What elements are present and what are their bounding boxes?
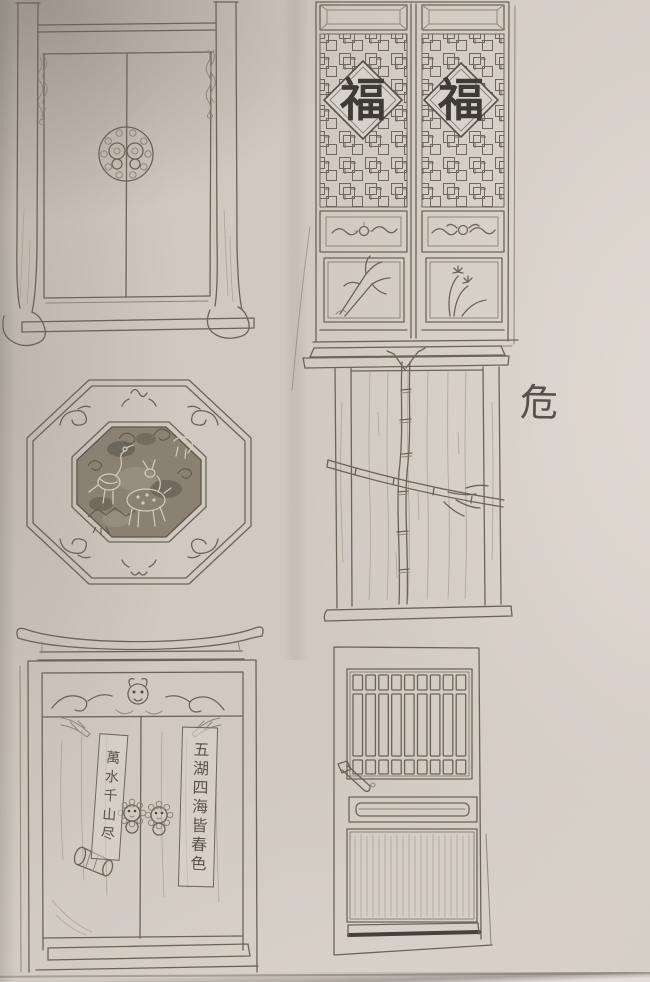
lintel <box>38 23 216 32</box>
cornice <box>303 346 509 368</box>
paper-bottom-edge <box>0 972 650 982</box>
threshold <box>22 318 254 332</box>
grille-bottom-row <box>353 760 466 774</box>
bamboo-stalk-diagonal <box>327 460 504 516</box>
grille-slats <box>353 694 466 756</box>
couplet-right: 五湖四海皆春色 <box>178 727 218 888</box>
carved-rail-right <box>422 211 504 252</box>
sketch-courtyard-gate <box>12 620 277 978</box>
bamboo-stalk-vertical <box>387 348 425 604</box>
gate-threshold <box>36 944 258 970</box>
carved-rail-left <box>320 211 407 252</box>
sketch-fu-lattice-doors <box>312 0 522 352</box>
planks <box>369 371 466 600</box>
door-frame <box>334 647 492 955</box>
sketch-octagonal-carved-window <box>26 379 256 589</box>
bottom-rail <box>348 923 479 937</box>
frieze-carving <box>52 679 224 714</box>
sketch-bamboo-plank-door <box>298 342 513 634</box>
ink-character-wei: 危 <box>520 372 573 428</box>
couplet-right-text: 五湖四海皆春色 <box>184 740 211 874</box>
stray-pencil-line <box>288 225 318 395</box>
sill <box>324 606 512 621</box>
top-rail-right <box>422 5 504 30</box>
door-head-rail <box>43 716 243 717</box>
slat-grille <box>347 669 472 779</box>
top-rail-left <box>320 5 407 30</box>
left-post <box>3 3 45 346</box>
door-frame <box>43 52 212 303</box>
corner-brace-left <box>61 718 90 737</box>
mid-rail <box>349 797 477 822</box>
gate-roof <box>17 627 263 660</box>
flower-panel-left <box>324 256 404 322</box>
fu-character-right: 福 <box>433 72 489 128</box>
couplet-left-text: 萬水千山尽 <box>96 749 123 845</box>
flower-panel-right <box>426 258 502 322</box>
sketch-plain-double-door <box>2 0 272 352</box>
lower-panel <box>347 829 477 922</box>
sketchbook-page: 福 福 五湖四海皆春色 萬水千山尽 危 <box>0 0 650 982</box>
sketch-slat-grille-door <box>329 639 501 963</box>
fu-character-left: 福 <box>335 72 391 128</box>
lion-knocker-right <box>145 801 173 835</box>
grille-top-row <box>353 675 466 690</box>
hanging-ornament-left <box>38 57 47 125</box>
door-frame <box>335 367 501 608</box>
